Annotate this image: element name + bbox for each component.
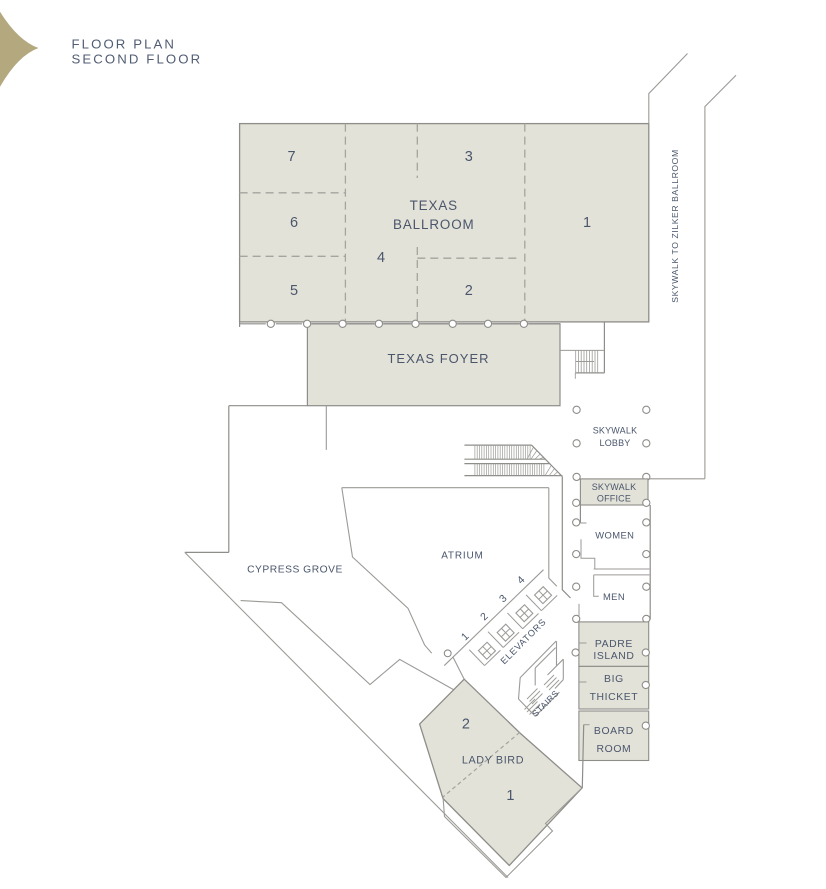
- svg-text:BIG: BIG: [604, 674, 624, 685]
- svg-text:MEN: MEN: [603, 591, 625, 602]
- svg-text:OFFICE: OFFICE: [597, 494, 631, 504]
- svg-text:2: 2: [465, 283, 473, 299]
- svg-text:2: 2: [462, 717, 470, 733]
- svg-text:FLOOR PLAN: FLOOR PLAN: [72, 37, 177, 52]
- svg-text:SKYWALK TO ZILKER BALLROOM: SKYWALK TO ZILKER BALLROOM: [670, 149, 680, 302]
- svg-text:TEXAS: TEXAS: [410, 198, 458, 213]
- svg-text:SKYWALK: SKYWALK: [592, 482, 637, 492]
- svg-text:WOMEN: WOMEN: [595, 530, 634, 541]
- svg-text:ISLAND: ISLAND: [593, 651, 634, 662]
- svg-text:ATRIUM: ATRIUM: [441, 551, 483, 562]
- svg-text:7: 7: [287, 149, 295, 165]
- svg-text:PADRE: PADRE: [595, 639, 633, 650]
- svg-text:SECOND FLOOR: SECOND FLOOR: [72, 52, 203, 67]
- svg-text:4: 4: [377, 250, 385, 266]
- svg-text:TEXAS FOYER: TEXAS FOYER: [387, 351, 489, 366]
- svg-text:1: 1: [506, 788, 514, 804]
- svg-text:ROOM: ROOM: [597, 744, 632, 755]
- svg-text:5: 5: [290, 283, 298, 299]
- svg-text:THICKET: THICKET: [590, 692, 639, 703]
- svg-text:BOARD: BOARD: [594, 726, 634, 737]
- svg-text:BALLROOM: BALLROOM: [393, 217, 475, 232]
- svg-text:6: 6: [290, 215, 298, 231]
- svg-text:3: 3: [465, 149, 473, 165]
- svg-text:SKYWALK: SKYWALK: [593, 426, 638, 436]
- svg-text:LADY BIRD: LADY BIRD: [462, 755, 524, 767]
- svg-text:LOBBY: LOBBY: [599, 438, 630, 448]
- svg-text:1: 1: [583, 215, 591, 231]
- svg-text:CYPRESS GROVE: CYPRESS GROVE: [247, 565, 343, 576]
